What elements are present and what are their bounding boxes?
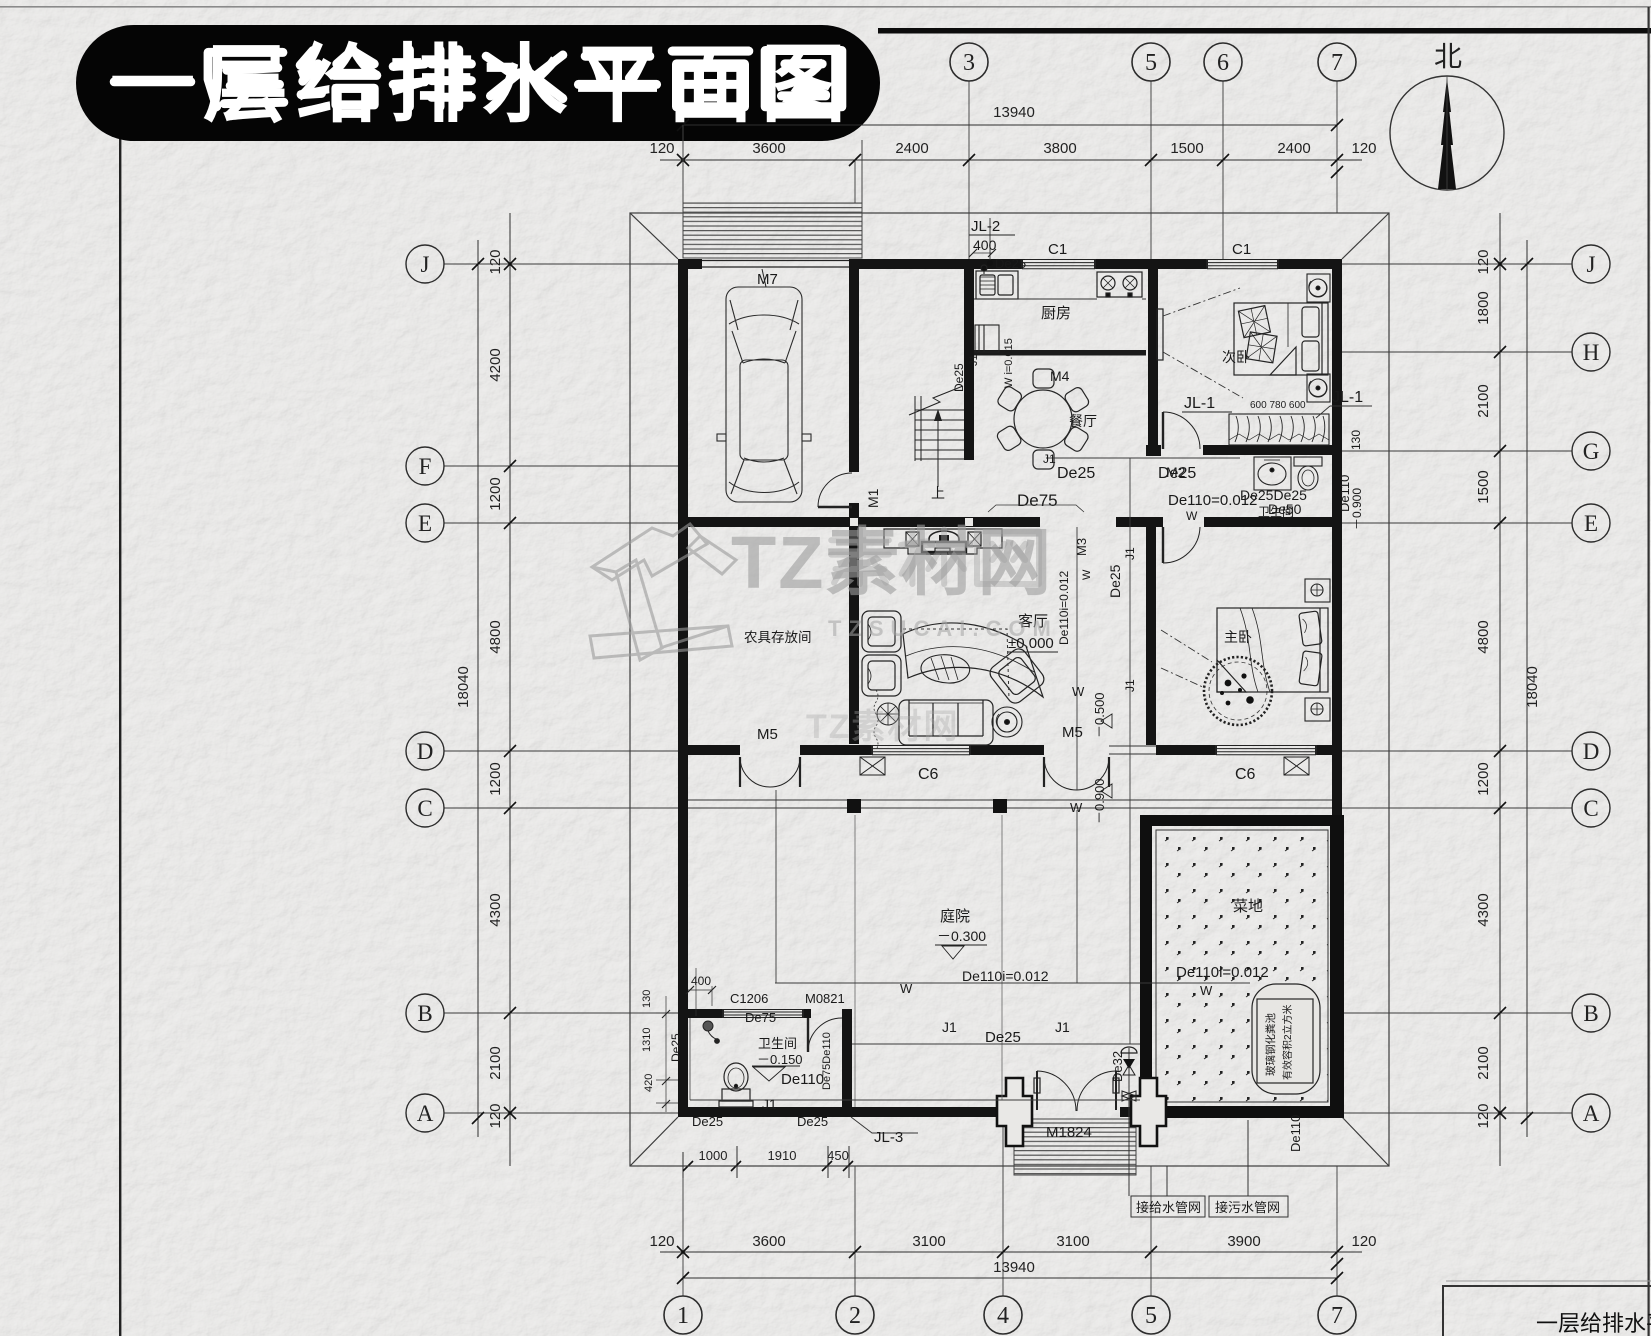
svg-text:400: 400 [973, 237, 997, 253]
svg-text:7: 7 [1331, 1303, 1343, 1329]
svg-text:C1: C1 [1048, 241, 1067, 258]
svg-text:1910: 1910 [768, 1148, 797, 1163]
svg-text:B: B [417, 1001, 432, 1026]
svg-text:W: W [1186, 509, 1198, 523]
svg-text:W: W [900, 981, 913, 996]
svg-text:J: J [421, 252, 430, 277]
svg-text:De25: De25 [995, 256, 1026, 271]
svg-text:TZSUCAI.COM: TZSUCAI.COM [828, 616, 1058, 641]
svg-text:De110: De110 [1337, 475, 1352, 512]
svg-text:玻璃钢化粪池: 玻璃钢化粪池 [1264, 1013, 1277, 1076]
svg-text:4300: 4300 [1475, 893, 1492, 926]
svg-text:卫生间: 卫生间 [758, 1036, 797, 1051]
svg-text:De25: De25 [797, 1114, 828, 1129]
svg-text:De25: De25 [1107, 564, 1123, 598]
svg-text:菜地: 菜地 [1233, 898, 1263, 915]
svg-text:M4: M4 [1050, 368, 1070, 384]
svg-text:De110: De110 [781, 1071, 824, 1088]
svg-text:JL-1: JL-1 [1184, 395, 1215, 412]
svg-text:一层给排水平面: 一层给排水平面 [1536, 1311, 1651, 1336]
svg-text:5: 5 [1145, 50, 1157, 76]
svg-text:接给水管网: 接给水管网 [1136, 1200, 1201, 1215]
svg-text:4800: 4800 [1475, 620, 1492, 653]
svg-text:C1: C1 [1232, 241, 1251, 258]
svg-text:De25: De25 [669, 1033, 683, 1062]
svg-text:De110i=0.012: De110i=0.012 [1176, 964, 1269, 981]
svg-text:庭院: 庭院 [940, 907, 970, 925]
svg-text:2400: 2400 [895, 140, 928, 157]
svg-text:TZ素材网: TZ素材网 [806, 708, 960, 746]
svg-text:C: C [1583, 796, 1598, 821]
svg-text:2400: 2400 [1277, 140, 1310, 157]
svg-text:－0.300: －0.300 [937, 928, 986, 944]
svg-text:TZ素材网: TZ素材网 [731, 521, 1053, 604]
svg-text:120: 120 [487, 1103, 504, 1128]
svg-text:J1: J1 [942, 1019, 957, 1035]
svg-text:主卧: 主卧 [1224, 629, 1252, 645]
svg-text:3800: 3800 [1043, 140, 1076, 157]
svg-text:D: D [417, 739, 434, 764]
svg-text:－0.900: －0.900 [1092, 778, 1107, 824]
svg-text:3: 3 [963, 50, 975, 76]
svg-text:A: A [1583, 1101, 1600, 1126]
svg-text:130: 130 [641, 990, 653, 1008]
svg-text:120: 120 [1351, 1233, 1376, 1250]
svg-text:400: 400 [691, 974, 711, 988]
svg-text:130: 130 [1349, 430, 1363, 450]
svg-text:1000: 1000 [699, 1148, 728, 1163]
svg-text:3900: 3900 [1227, 1233, 1260, 1250]
svg-text:3100: 3100 [912, 1233, 945, 1250]
svg-text:F: F [419, 454, 432, 479]
svg-text:1200: 1200 [487, 762, 504, 795]
svg-text:JL-1: JL-1 [1332, 389, 1363, 406]
svg-text:餐厅: 餐厅 [1069, 413, 1097, 429]
svg-text:7: 7 [1331, 50, 1343, 76]
svg-text:1: 1 [677, 1303, 689, 1329]
svg-text:C: C [417, 796, 432, 821]
svg-text:120: 120 [487, 249, 504, 274]
svg-text:De25: De25 [692, 1114, 723, 1129]
svg-text:接污水管网: 接污水管网 [1215, 1200, 1280, 1215]
svg-text:1200: 1200 [1475, 762, 1492, 795]
svg-text:J1: J1 [1043, 452, 1056, 466]
svg-text:J1: J1 [1123, 679, 1137, 692]
svg-text:D: D [1583, 739, 1600, 764]
svg-text:W: W [1081, 569, 1093, 580]
svg-text:6: 6 [1217, 50, 1229, 76]
svg-text:M1824: M1824 [1046, 1124, 1092, 1141]
svg-text:120: 120 [649, 140, 674, 157]
svg-text:M5: M5 [757, 726, 778, 743]
svg-text:De32: De32 [1110, 1051, 1125, 1082]
svg-text:4300: 4300 [487, 893, 504, 926]
svg-text:13940: 13940 [993, 104, 1035, 121]
svg-text:1500: 1500 [1475, 470, 1492, 503]
svg-text:2100: 2100 [487, 1046, 504, 1079]
svg-text:De25: De25 [1057, 465, 1095, 482]
svg-text:De50: De50 [1268, 501, 1302, 517]
svg-text:H: H [1583, 340, 1600, 365]
svg-text:450: 450 [827, 1148, 849, 1163]
svg-text:13940: 13940 [993, 1259, 1035, 1276]
svg-text:J1: J1 [1123, 547, 1137, 560]
svg-text:M5: M5 [1062, 724, 1083, 741]
svg-text:G: G [1583, 439, 1600, 464]
svg-text:一层给排水平面图: 一层给排水平面图 [110, 38, 854, 133]
svg-text:3600: 3600 [752, 140, 785, 157]
svg-text:18040: 18040 [1524, 666, 1541, 708]
svg-text:1500: 1500 [1170, 140, 1203, 157]
svg-text:4200: 4200 [487, 348, 504, 381]
svg-text:JL-3: JL-3 [874, 1129, 903, 1146]
svg-text:－0.500: －0.500 [1092, 692, 1107, 738]
svg-text:A: A [417, 1101, 434, 1126]
svg-text:－0.900: －0.900 [1350, 488, 1364, 530]
svg-text:E: E [418, 511, 432, 536]
svg-text:3600: 3600 [752, 1233, 785, 1250]
svg-text:北: 北 [1434, 41, 1462, 72]
svg-text:5: 5 [1145, 1303, 1157, 1329]
svg-text:De75: De75 [745, 1010, 776, 1025]
svg-text:120: 120 [649, 1233, 674, 1250]
svg-text:600 780 600: 600 780 600 [1250, 400, 1306, 411]
svg-text:2100: 2100 [1475, 384, 1492, 417]
svg-text:18040: 18040 [455, 666, 472, 708]
svg-text:3100: 3100 [1056, 1233, 1089, 1250]
svg-text:J1: J1 [1055, 1019, 1070, 1035]
svg-text:农具存放间: 农具存放间 [744, 630, 812, 645]
svg-text:－0.150: －0.150 [757, 1052, 803, 1067]
svg-text:De25: De25 [952, 363, 966, 392]
svg-text:120: 120 [1475, 249, 1492, 274]
svg-text:W: W [1200, 983, 1213, 998]
svg-text:C6: C6 [1235, 766, 1256, 783]
svg-text:M1: M1 [865, 488, 881, 508]
svg-text:1800: 1800 [1475, 291, 1492, 324]
svg-text:M3: M3 [1074, 538, 1089, 556]
svg-text:De110i=0.012: De110i=0.012 [962, 968, 1049, 984]
svg-text:J: J [1587, 252, 1596, 277]
svg-text:2: 2 [849, 1303, 861, 1329]
svg-text:De25: De25 [985, 1029, 1021, 1046]
svg-text:De75: De75 [1017, 491, 1058, 510]
svg-text:有效容积2立方米: 有效容积2立方米 [1281, 1004, 1294, 1080]
svg-text:M7: M7 [757, 271, 778, 288]
svg-text:JL-2: JL-2 [971, 218, 1000, 235]
svg-text:1200: 1200 [487, 477, 504, 510]
svg-text:4: 4 [997, 1303, 1009, 1329]
svg-text:J1: J1 [968, 354, 980, 366]
svg-text:120: 120 [1475, 1103, 1492, 1128]
svg-text:4800: 4800 [487, 620, 504, 653]
svg-text:上: 上 [931, 485, 945, 501]
svg-text:420: 420 [643, 1074, 655, 1092]
svg-text:M0821: M0821 [805, 991, 845, 1006]
svg-text:2100: 2100 [1475, 1046, 1492, 1079]
svg-text:C6: C6 [918, 766, 939, 783]
svg-text:De110: De110 [1288, 1115, 1303, 1152]
svg-text:E: E [1584, 511, 1598, 536]
svg-text:C1206: C1206 [730, 991, 768, 1006]
svg-text:De110i=0.012: De110i=0.012 [1057, 571, 1071, 646]
svg-text:De75De110: De75De110 [821, 1032, 833, 1090]
svg-text:W i=0.015: W i=0.015 [1003, 338, 1015, 388]
svg-text:120: 120 [1351, 140, 1376, 157]
svg-text:W: W [1072, 684, 1085, 699]
svg-text:厨房: 厨房 [1041, 305, 1071, 322]
svg-text:B: B [1583, 1001, 1598, 1026]
svg-text:W: W [1070, 800, 1083, 815]
svg-text:J1: J1 [762, 1096, 777, 1112]
svg-text:1310: 1310 [641, 1028, 653, 1052]
svg-text:M2: M2 [1166, 464, 1186, 480]
svg-text:次卧: 次卧 [1222, 349, 1250, 365]
